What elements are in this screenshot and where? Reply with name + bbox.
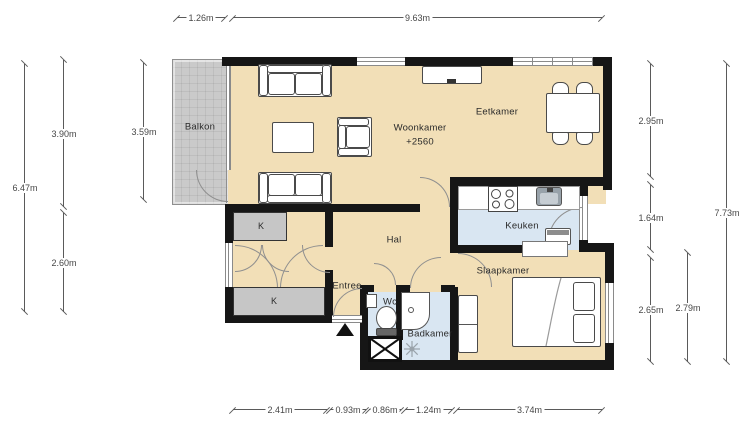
dim-right-bedroom: 2.65m bbox=[650, 258, 651, 362]
dining-chair bbox=[552, 132, 569, 145]
shower-drain bbox=[408, 307, 414, 313]
dim-bottom-1: 2.41m bbox=[233, 409, 327, 410]
appliance-top bbox=[547, 230, 569, 235]
dim-right-living: 2.95m bbox=[650, 64, 651, 177]
room-label-wc: Wc bbox=[383, 297, 397, 308]
sofa-top bbox=[258, 64, 332, 97]
wall-closet-hall-divider-lower bbox=[325, 270, 333, 318]
dim-left-upper: 3.90m bbox=[63, 60, 64, 207]
armchair-seat bbox=[346, 126, 370, 148]
shaft-icon bbox=[368, 336, 402, 362]
wardrobe bbox=[458, 295, 478, 353]
sofa-armrest bbox=[259, 65, 268, 96]
sofa-armrest bbox=[322, 65, 331, 96]
closet-label-top: K bbox=[258, 221, 264, 231]
window-living-top bbox=[357, 57, 405, 66]
wall-closet-hall-divider-upper bbox=[325, 204, 333, 247]
armchair-back bbox=[338, 125, 346, 149]
closet-bottom bbox=[233, 287, 325, 316]
wc-sink bbox=[366, 294, 377, 308]
dim-bottom-2: 0.93m bbox=[330, 409, 366, 410]
window-balcony-glasswall bbox=[226, 66, 231, 170]
room-label-slaapkamer: Slaapkamer bbox=[477, 266, 530, 277]
sofa-bottom bbox=[258, 172, 332, 204]
sofa-armrest bbox=[259, 173, 268, 203]
room-label-entree: Entree bbox=[332, 281, 361, 292]
dim-right-bedroom-outer: 2.79m bbox=[687, 253, 688, 362]
dim-top-main: 9.63m bbox=[233, 17, 602, 18]
window-dining-top bbox=[513, 57, 593, 66]
room-label-woonkamer: Woonkamer bbox=[394, 123, 447, 134]
dim-bottom-5: 3.74m bbox=[457, 409, 602, 410]
dim-left-total: 6.47m bbox=[24, 64, 25, 312]
toilet-tank bbox=[376, 328, 397, 336]
wardrobe-divider bbox=[459, 324, 477, 325]
shower-head-icon bbox=[403, 340, 421, 358]
sofa-seat bbox=[295, 73, 322, 95]
sofa-back bbox=[267, 65, 325, 73]
armchair-armrest bbox=[338, 118, 369, 126]
room-label-balkon: Balkon bbox=[185, 122, 215, 133]
coffee-table bbox=[272, 122, 314, 153]
door-leaf-balcony bbox=[226, 170, 227, 203]
entrance-arrow-icon bbox=[336, 323, 354, 336]
kitchen-cabinet bbox=[522, 241, 568, 257]
dining-table bbox=[546, 93, 600, 133]
wall-hall-right-upper bbox=[450, 177, 458, 253]
bed bbox=[512, 277, 601, 347]
dim-left-lower: 2.60m bbox=[63, 213, 64, 312]
closet-label-bottom: K bbox=[271, 296, 277, 306]
wall-living-bottom bbox=[225, 204, 420, 212]
floorplan-canvas: Balkon Woonkamer +2560 Eetkamer Hal Keuk… bbox=[0, 0, 750, 441]
sofa-seat bbox=[268, 73, 295, 95]
sofa-seat bbox=[268, 174, 295, 196]
dim-left-balcony: 3.59m bbox=[143, 63, 144, 200]
toilet-bowl bbox=[376, 306, 397, 330]
tv-mark bbox=[447, 79, 456, 83]
pillow bbox=[573, 282, 595, 311]
armchair-armrest bbox=[338, 148, 369, 156]
stove-icon bbox=[488, 186, 518, 212]
dim-right-kitchen: 1.64m bbox=[650, 185, 651, 250]
pillow bbox=[573, 314, 595, 343]
tv-sideboard bbox=[422, 66, 482, 84]
dim-bottom-3: 0.86m bbox=[369, 409, 401, 410]
room-label-badkamer: Badkamer bbox=[408, 329, 453, 340]
dim-top-balcony: 1.26m bbox=[177, 17, 225, 18]
sink-basin bbox=[540, 193, 558, 204]
sofa-back bbox=[267, 195, 325, 203]
kitchen-sink bbox=[536, 187, 562, 206]
wall-bottom-left bbox=[225, 315, 332, 323]
shower-tray bbox=[401, 292, 430, 330]
armchair bbox=[337, 117, 372, 157]
dim-bottom-4: 1.24m bbox=[405, 409, 452, 410]
room-label-eetkamer: Eetkamer bbox=[476, 107, 518, 118]
room-label-hal: Hal bbox=[387, 235, 402, 246]
window-closet-hall bbox=[225, 243, 233, 287]
wall-hall-bottom-2 bbox=[396, 285, 410, 292]
sofa-armrest bbox=[322, 173, 331, 203]
sofa-seat bbox=[295, 174, 322, 196]
room-elevation-woonkamer: +2560 bbox=[406, 137, 434, 148]
dim-right-total: 7.73m bbox=[726, 64, 727, 362]
room-label-keuken: Keuken bbox=[505, 221, 538, 232]
wall-kitchen-top bbox=[452, 177, 612, 186]
wall-hall-bottom-1 bbox=[360, 285, 374, 292]
wall-right-dining bbox=[603, 57, 612, 190]
sink-faucet bbox=[547, 188, 553, 192]
dining-chair bbox=[576, 132, 593, 145]
window-bedroom-right bbox=[605, 283, 614, 343]
